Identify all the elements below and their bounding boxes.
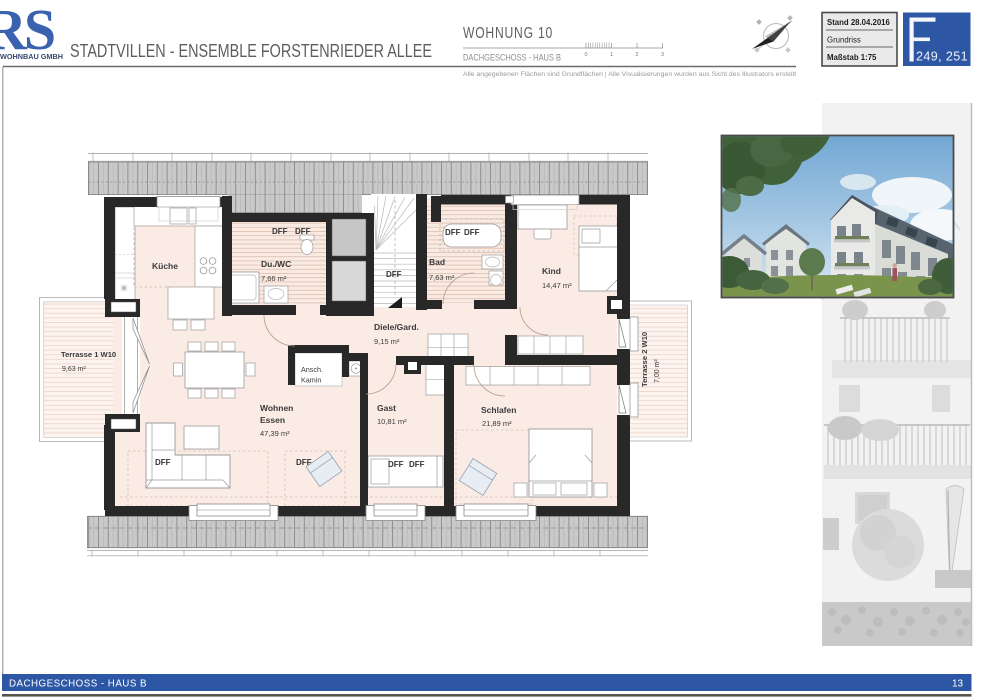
svg-text:Essen: Essen [260,415,285,425]
svg-text:DFF: DFF [386,270,402,279]
svg-text:21,89 m²: 21,89 m² [482,419,512,428]
svg-text:Wohnen: Wohnen [260,403,293,413]
svg-text:Schlafen: Schlafen [481,405,516,415]
svg-text:DFF: DFF [409,460,425,469]
svg-text:Terrasse 2 W10: Terrasse 2 W10 [640,332,649,387]
svg-text:Alle angegebenen Flächen sind: Alle angegebenen Flächen sind Grundfläch… [463,71,796,78]
svg-text:10,81 m²: 10,81 m² [377,417,407,426]
svg-text:0: 0 [584,52,587,58]
svg-text:DFF: DFF [464,228,480,237]
svg-text:2: 2 [635,52,638,58]
svg-text:DFF: DFF [445,228,461,237]
svg-text:Gast: Gast [377,403,396,413]
svg-text:Grundriss: Grundriss [827,36,861,45]
svg-text:DACHGESCHOSS - HAUS B: DACHGESCHOSS - HAUS B [9,679,147,690]
svg-text:7,00 m²: 7,00 m² [654,359,661,383]
svg-text:7,63 m²: 7,63 m² [429,273,455,282]
svg-text:WOHNBAU GMBH: WOHNBAU GMBH [0,52,63,61]
svg-text:Kind: Kind [542,266,561,276]
svg-text:13: 13 [952,679,964,690]
svg-text:Terrasse 1 W10: Terrasse 1 W10 [61,350,116,359]
svg-text:Diele/Gard.: Diele/Gard. [374,322,419,332]
svg-text:47,39 m²: 47,39 m² [260,429,290,438]
svg-text:1: 1 [610,52,613,58]
svg-text:Küche: Küche [152,261,178,271]
svg-text:Ansch.: Ansch. [301,365,323,374]
svg-text:Stand 28.04.2016: Stand 28.04.2016 [827,18,891,27]
svg-text:9,15 m²: 9,15 m² [374,337,400,346]
svg-text:Du./WC: Du./WC [261,259,291,269]
svg-text:DFF: DFF [155,458,171,467]
svg-text:STADTVILLEN - ENSEMBLE FORSTE: STADTVILLEN - ENSEMBLE FORSTENRIEDER ALL… [70,40,432,61]
svg-text:DACHGESCHOSS - HAUS B: DACHGESCHOSS - HAUS B [463,53,561,64]
svg-text:Kamin: Kamin [301,376,321,385]
svg-text:DFF: DFF [295,227,311,236]
svg-text:3: 3 [661,52,664,58]
svg-text:DFF: DFF [388,460,404,469]
svg-text:DFF: DFF [296,458,312,467]
svg-text:7,66 m²: 7,66 m² [261,274,287,283]
svg-text:WOHNUNG 10: WOHNUNG 10 [463,25,553,42]
svg-text:Maßstab 1:75: Maßstab 1:75 [827,53,877,62]
svg-text:Bad: Bad [429,257,445,267]
svg-text:9,63 m²: 9,63 m² [62,366,86,373]
svg-text:249, 251: 249, 251 [916,49,968,64]
svg-text:14,47 m²: 14,47 m² [542,281,572,290]
svg-text:DFF: DFF [272,227,288,236]
